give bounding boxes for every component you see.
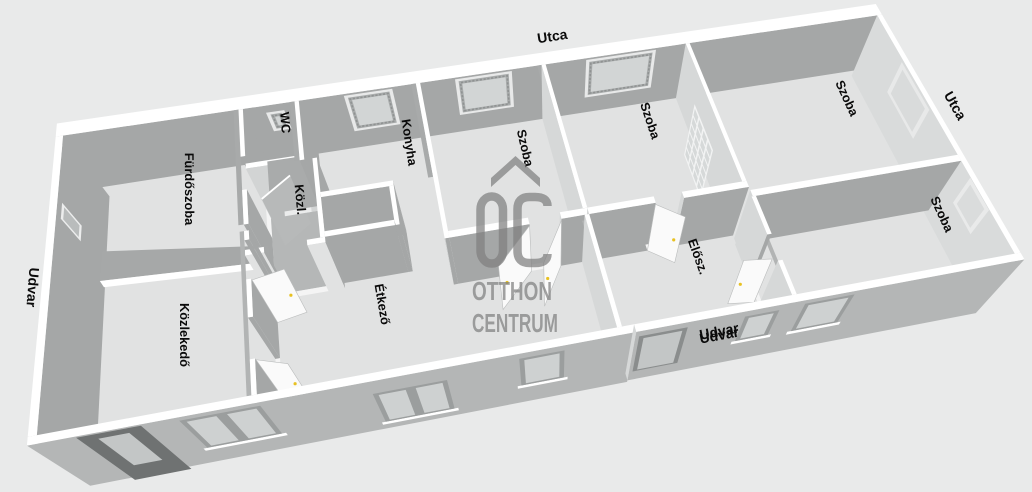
- svg-text:Közl.: Közl.: [292, 184, 310, 216]
- svg-text:OTTHON: OTTHON: [472, 278, 552, 306]
- svg-text:Közlekedő: Közlekedő: [177, 303, 192, 367]
- svg-text:CENTRUM: CENTRUM: [472, 310, 558, 338]
- svg-text:WC: WC: [277, 111, 294, 133]
- svg-text:Fürdőszoba: Fürdőszoba: [182, 153, 197, 226]
- svg-text:Udvar: Udvar: [23, 267, 42, 308]
